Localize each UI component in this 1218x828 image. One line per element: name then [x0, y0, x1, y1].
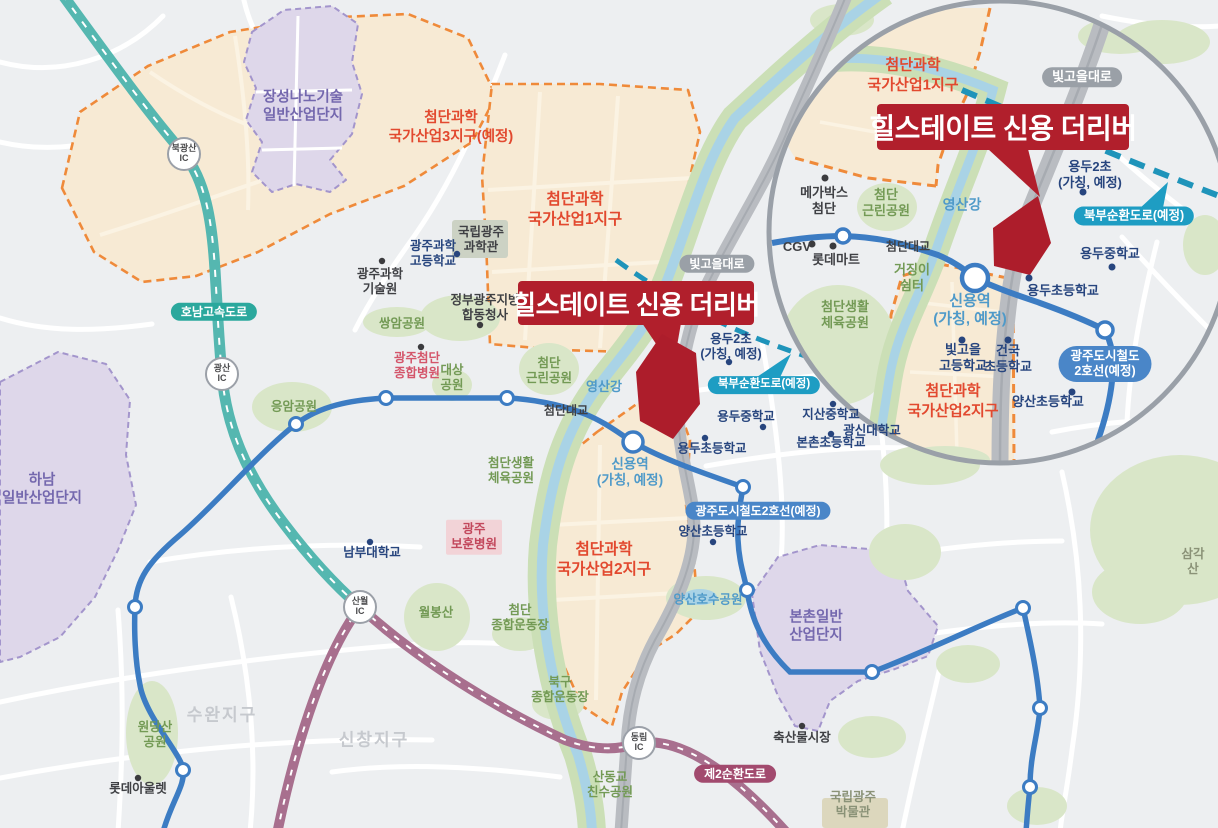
callout-main: 힐스테이트 신용 더리버	[518, 281, 754, 325]
museum-building	[822, 798, 888, 828]
sinyong-station-circle	[623, 432, 643, 452]
ic-sanwol: 산월 IC	[343, 590, 377, 624]
inset-pill-metro-line-2: 광주도시철도 2호선(예정)	[1058, 346, 1151, 382]
pill-metro-line-2: 광주도시철도2호선(예정)	[685, 502, 830, 520]
ic-dongnim: 동림 IC	[622, 726, 656, 760]
science-museum-building	[452, 220, 508, 258]
pill-ring-road-2: 제2순환도로	[694, 765, 776, 783]
pill-bitgoeul-daero: 빛고을대로	[679, 255, 754, 273]
inset-pill-north-ring: 북부순환도로(예정)	[1074, 207, 1194, 226]
pill-honam-expressway: 호남고속도로	[171, 303, 257, 321]
callout-inset: 힐스테이트 신용 더리버	[877, 104, 1129, 150]
yangsan-lake	[683, 589, 717, 605]
location-map: 첨단과학 국가산업3지구(예정) 첨단과학 국가산업1지구 첨단과학 국가산업2…	[0, 0, 1218, 828]
ic-bukgwangsan: 북광산 IC	[167, 137, 201, 171]
ic-gwangsan: 광산 IC	[205, 357, 239, 391]
pill-north-ring-road: 북부순환도로(예정)	[708, 376, 820, 394]
inset-pill-bitgoeul-daero: 빛고을대로	[1042, 67, 1122, 87]
